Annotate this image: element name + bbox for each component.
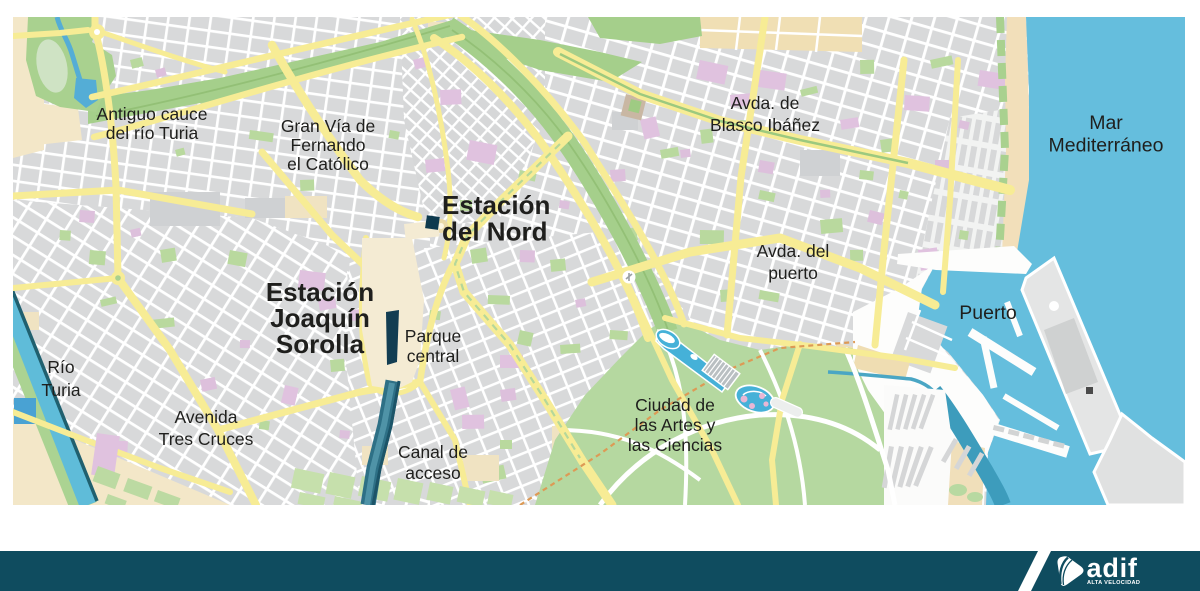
svg-text:Ciudad delas Artes ylas Cienci: Ciudad delas Artes ylas Ciencias bbox=[628, 395, 723, 455]
svg-text:Puerto: Puerto bbox=[959, 302, 1017, 324]
svg-text:adif: adif bbox=[1087, 553, 1138, 583]
svg-text:EstaciónJoaquínSorolla: EstaciónJoaquínSorolla bbox=[266, 277, 374, 359]
svg-text:Canal deacceso: Canal deacceso bbox=[398, 442, 468, 483]
svg-text:Antiguo caucedel río Turia: Antiguo caucedel río Turia bbox=[97, 104, 208, 143]
svg-text:Estacióndel Nord: Estacióndel Nord bbox=[442, 190, 550, 247]
svg-text:ALTA VELOCIDAD: ALTA VELOCIDAD bbox=[1087, 580, 1140, 586]
svg-text:Parquecentral: Parquecentral bbox=[405, 326, 461, 366]
svg-text:Gran Vía deFernandoel Católico: Gran Vía deFernandoel Católico bbox=[281, 116, 375, 174]
